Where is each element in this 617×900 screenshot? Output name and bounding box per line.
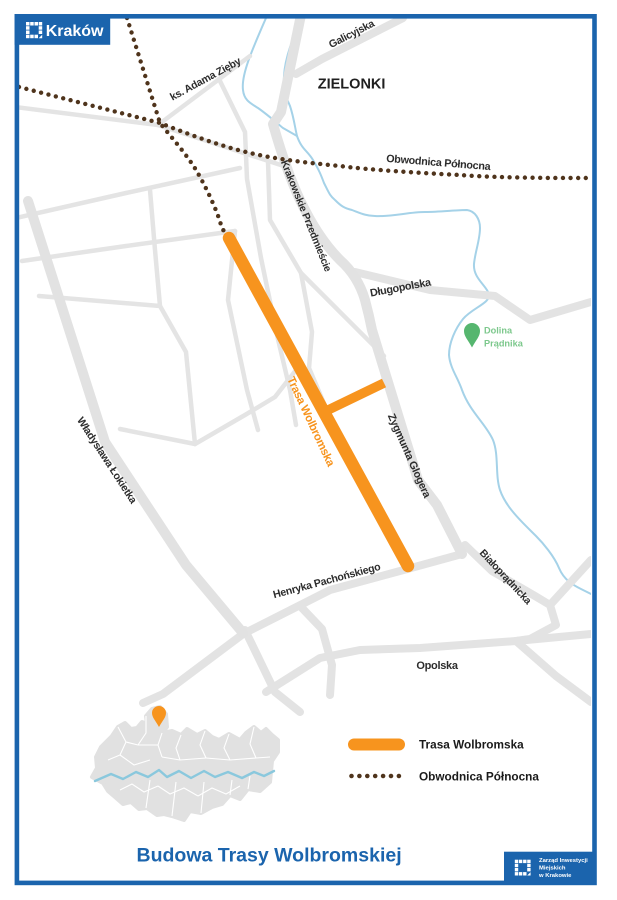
svg-text:ZIELONKI: ZIELONKI (318, 76, 386, 92)
svg-text:Prądnika: Prądnika (484, 338, 524, 348)
svg-text:Dolina: Dolina (484, 325, 513, 335)
svg-text:Opolska: Opolska (416, 660, 458, 672)
svg-text:Trasa Wolbromska: Trasa Wolbromska (419, 738, 524, 752)
svg-text:Zarząd Inwestycji: Zarząd Inwestycji (539, 858, 588, 864)
svg-text:w Krakowie: w Krakowie (538, 873, 572, 879)
svg-text:Budowa Trasy Wolbromskiej: Budowa Trasy Wolbromskiej (137, 845, 402, 867)
svg-text:Miejskich: Miejskich (539, 866, 566, 872)
svg-text:Kraków: Kraków (46, 23, 104, 40)
svg-text:Obwodnica Północna: Obwodnica Północna (419, 770, 539, 784)
